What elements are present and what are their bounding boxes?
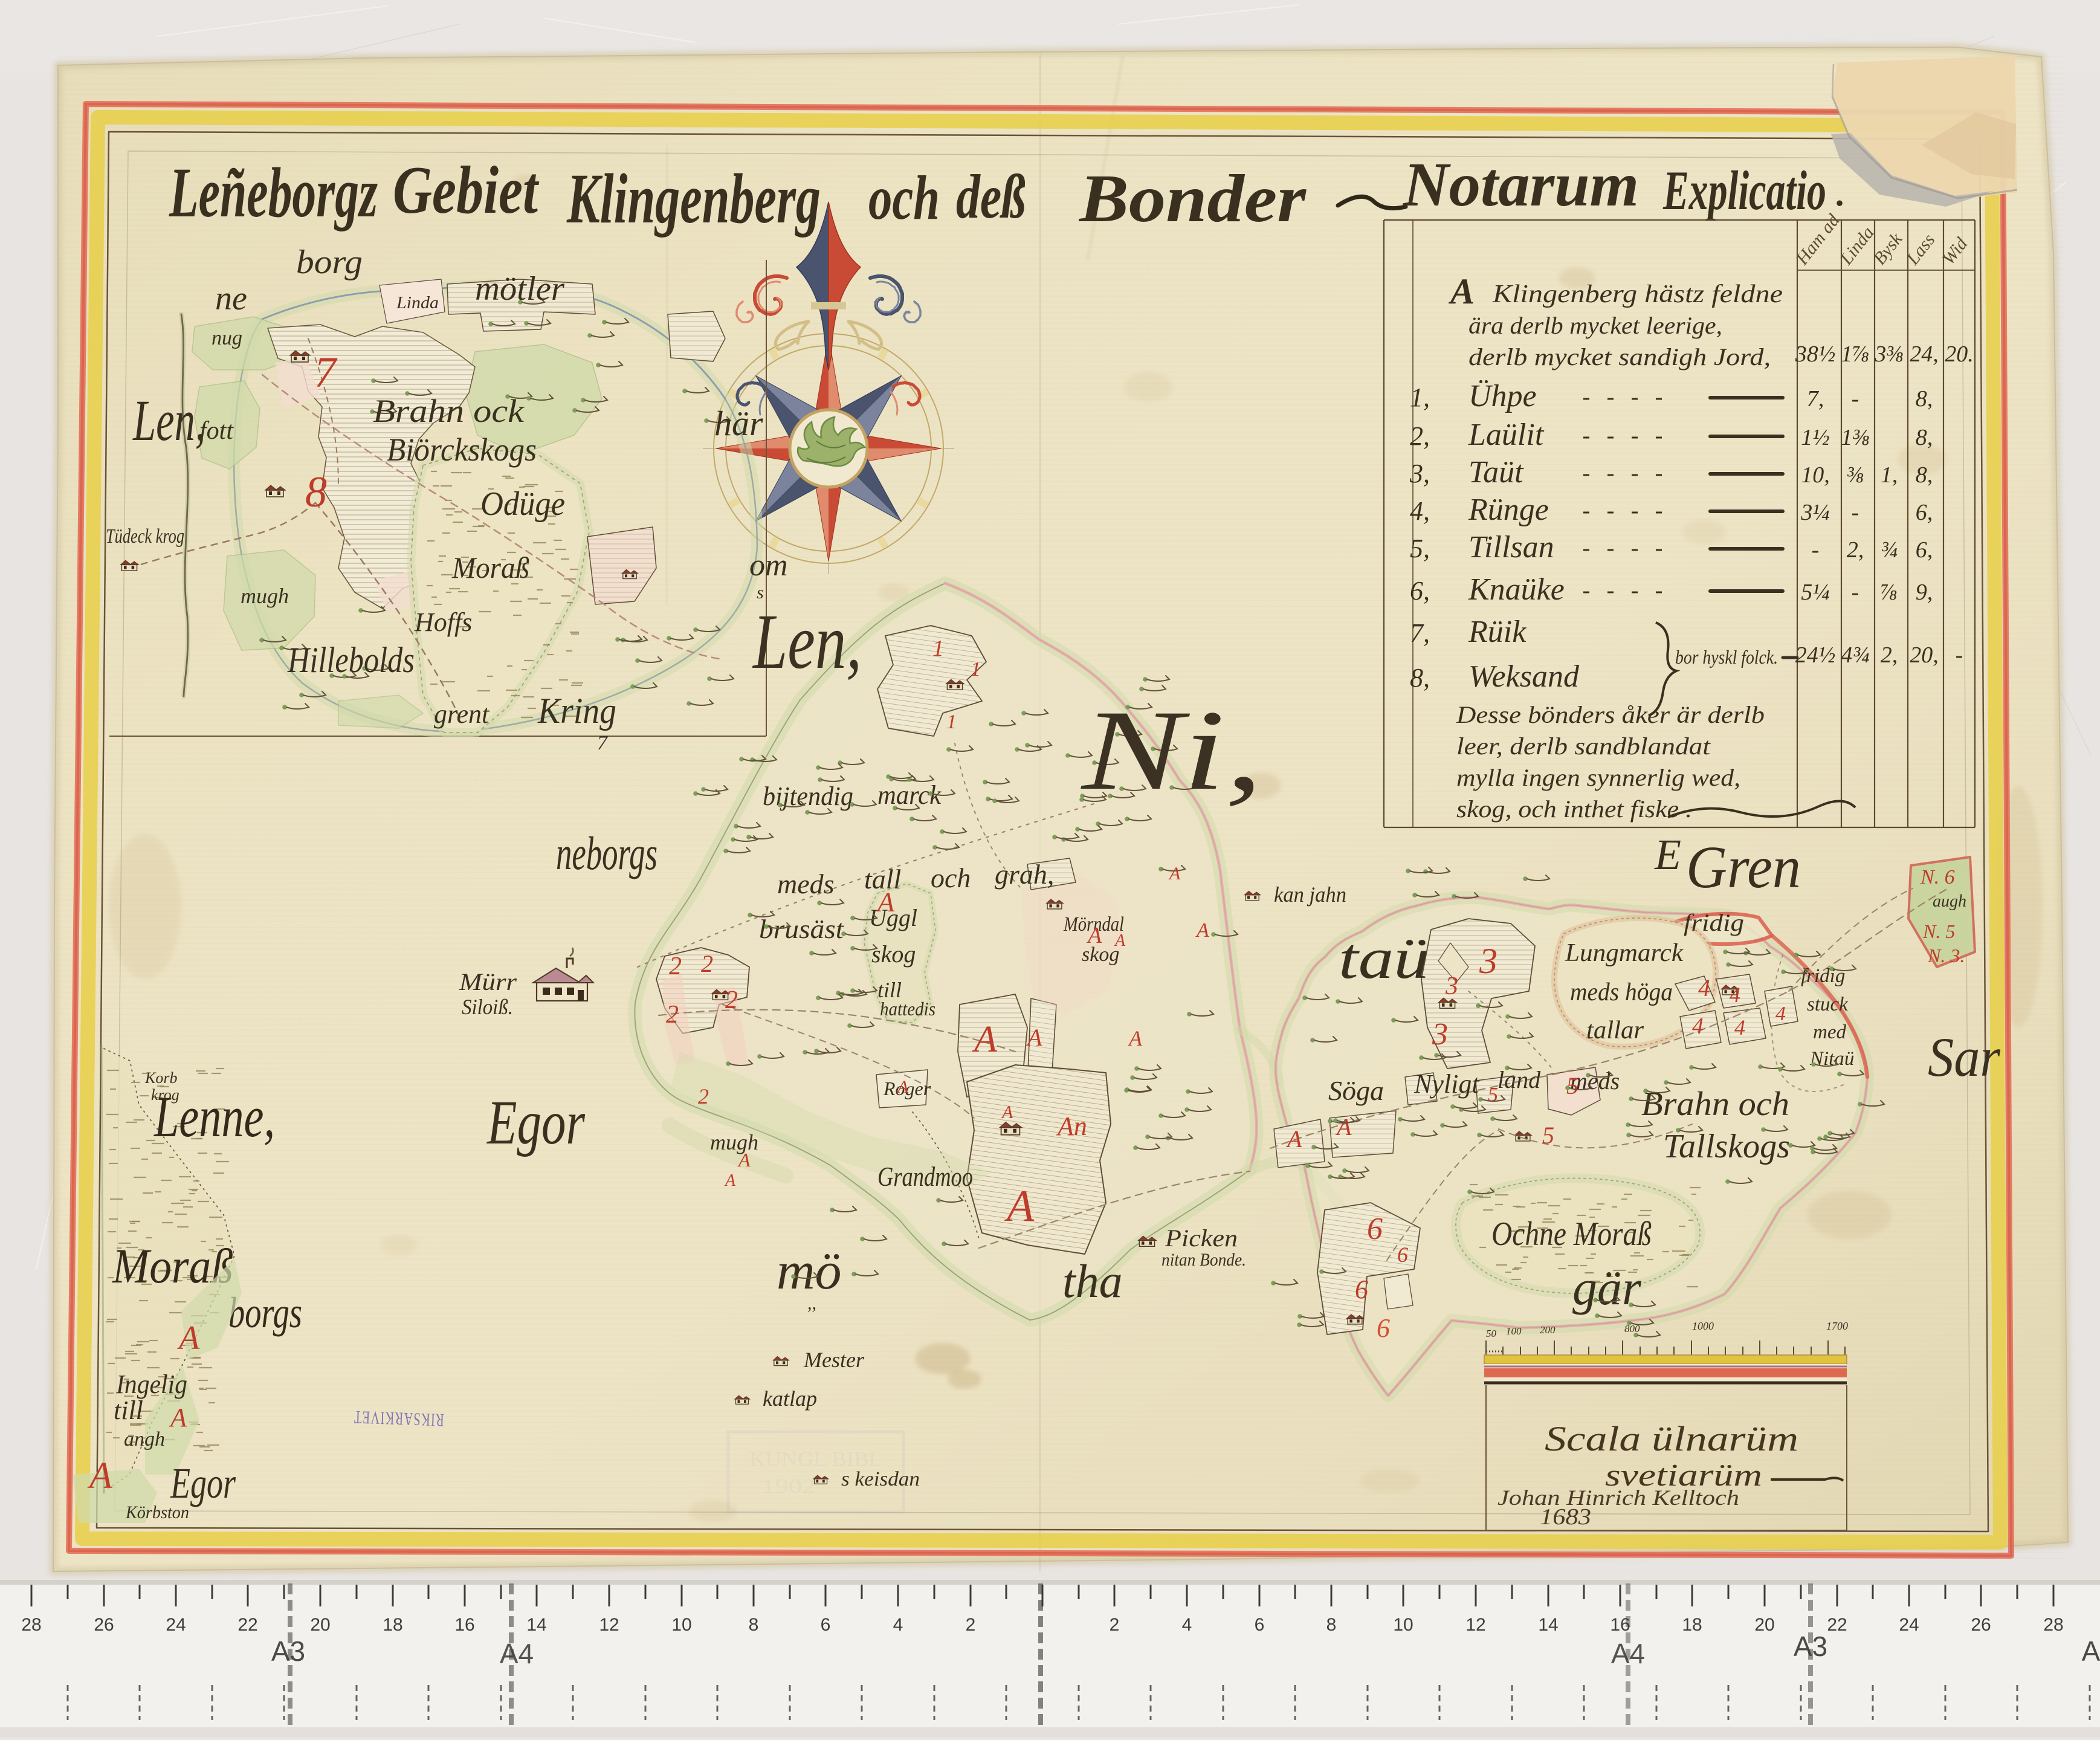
- svg-text:Biörckskogs: Biörckskogs: [387, 432, 537, 468]
- svg-text:RIKSARKIVET: RIKSARKIVET: [353, 1407, 444, 1430]
- svg-text:6,: 6,: [1410, 576, 1430, 606]
- svg-text:bor hyskl folck.: bor hyskl folck.: [1675, 646, 1778, 668]
- svg-text:A: A: [1026, 1024, 1042, 1051]
- svg-text:6: 6: [1367, 1212, 1383, 1246]
- svg-text:mugh: mugh: [241, 584, 289, 608]
- svg-text:7: 7: [314, 348, 338, 396]
- svg-text:Johan Hinrich Kelltoch: Johan Hinrich Kelltoch: [1497, 1486, 1739, 1510]
- svg-text:ne: ne: [215, 280, 247, 317]
- svg-text:Tallskogs: Tallskogs: [1663, 1128, 1790, 1165]
- svg-text:bijtendig: bijtendig: [763, 781, 853, 811]
- svg-text:katlap: katlap: [763, 1386, 817, 1411]
- svg-text:1½: 1½: [1801, 425, 1830, 450]
- svg-text:s keisdan: s keisdan: [841, 1468, 920, 1490]
- svg-text:A: A: [876, 887, 895, 917]
- svg-text:Taüt: Taüt: [1468, 455, 1524, 490]
- svg-text:A: A: [1114, 931, 1126, 950]
- svg-text:8: 8: [305, 468, 327, 516]
- svg-text:2,: 2,: [1847, 537, 1864, 563]
- svg-text:ära derlb mycket leerige,: ära derlb mycket leerige,: [1468, 312, 1722, 339]
- svg-text:4: 4: [1182, 1615, 1192, 1635]
- svg-text:A: A: [1335, 1113, 1352, 1140]
- svg-text:skog: skog: [871, 940, 916, 968]
- svg-text:borg: borg: [296, 244, 363, 281]
- svg-text:grent: grent: [434, 699, 490, 729]
- svg-text:Nitaü: Nitaü: [1809, 1048, 1854, 1070]
- svg-text:brusäst: brusäst: [759, 914, 845, 944]
- svg-text:1,: 1,: [1881, 462, 1898, 488]
- svg-text:Mürr: Mürr: [459, 968, 517, 995]
- svg-text:deß: deß: [956, 162, 1026, 231]
- svg-text:A: A: [1128, 1026, 1143, 1050]
- svg-text:38½: 38½: [1795, 341, 1836, 367]
- svg-text:angh: angh: [124, 1428, 165, 1451]
- svg-text:24½: 24½: [1795, 642, 1836, 668]
- svg-text:Laülit: Laülit: [1468, 418, 1545, 452]
- svg-text:A: A: [1448, 271, 1475, 311]
- svg-text:Lungmarck: Lungmarck: [1565, 939, 1684, 967]
- svg-text:Notarum: Notarum: [1403, 150, 1639, 219]
- svg-text:8,: 8,: [1410, 663, 1430, 693]
- svg-text:A4: A4: [500, 1638, 534, 1669]
- svg-text:10: 10: [671, 1615, 691, 1635]
- svg-text:5: 5: [1542, 1122, 1554, 1149]
- svg-text:kan jahn: kan jahn: [1274, 882, 1346, 907]
- svg-text:Bonder: Bonder: [1078, 161, 1307, 236]
- svg-text:stuck: stuck: [1807, 994, 1849, 1015]
- svg-text:Ochne Moraß: Ochne Moraß: [1491, 1215, 1652, 1253]
- svg-text:-: -: [1852, 386, 1859, 412]
- svg-text:12: 12: [1465, 1615, 1485, 1635]
- svg-text:Ni,: Ni,: [1080, 687, 1263, 814]
- svg-text:14: 14: [1538, 1615, 1558, 1635]
- svg-text:2: 2: [669, 952, 682, 980]
- svg-text:18: 18: [383, 1615, 402, 1635]
- svg-text:Linda: Linda: [396, 294, 439, 312]
- svg-text:fridig: fridig: [1684, 909, 1744, 936]
- svg-text:Tüdeck krog: Tüdeck krog: [106, 525, 184, 548]
- svg-text:4,: 4,: [1410, 496, 1430, 526]
- svg-text:-: -: [1852, 500, 1859, 525]
- svg-text:,,: ,,: [807, 1293, 816, 1313]
- svg-text:N. 5: N. 5: [1922, 920, 1955, 942]
- svg-text:1: 1: [932, 636, 944, 661]
- svg-text:4: 4: [1692, 1014, 1704, 1039]
- svg-text:Ühpe: Ühpe: [1468, 379, 1537, 413]
- svg-text:Explicatio: Explicatio: [1662, 160, 1826, 221]
- svg-text:Söga: Söga: [1328, 1075, 1384, 1106]
- svg-text:taü: taü: [1339, 926, 1429, 991]
- svg-text:1683: 1683: [1540, 1504, 1591, 1530]
- svg-text:6: 6: [821, 1615, 831, 1635]
- svg-text:100: 100: [1506, 1325, 1522, 1337]
- svg-text:Moraß: Moraß: [451, 551, 529, 584]
- svg-text:2,: 2,: [1410, 421, 1430, 451]
- svg-text:till: till: [114, 1396, 143, 1425]
- svg-text:1000: 1000: [1692, 1320, 1714, 1332]
- svg-text:6: 6: [1355, 1275, 1368, 1304]
- svg-text:24: 24: [1899, 1615, 1919, 1635]
- svg-text:3: 3: [1479, 941, 1497, 981]
- svg-text:Egor: Egor: [486, 1088, 585, 1157]
- svg-text:augh: augh: [1933, 892, 1966, 911]
- svg-text:Siloiß.: Siloiß.: [462, 995, 513, 1019]
- svg-text:Egor: Egor: [170, 1459, 236, 1507]
- svg-text:om: om: [749, 548, 788, 583]
- svg-text:7,: 7,: [1807, 386, 1824, 412]
- svg-text:Brahn ock: Brahn ock: [373, 393, 525, 429]
- svg-text:meds: meds: [777, 868, 835, 899]
- svg-text:24: 24: [166, 1615, 186, 1635]
- svg-text:20: 20: [1754, 1615, 1774, 1635]
- svg-text:22: 22: [1827, 1615, 1847, 1635]
- svg-text:2: 2: [698, 1084, 709, 1108]
- svg-text:5¼: 5¼: [1801, 580, 1830, 605]
- svg-text:22: 22: [237, 1615, 257, 1635]
- svg-text:Leñeborgz: Leñeborgz: [169, 153, 378, 232]
- svg-text:skog, och inthet fiske .: skog, och inthet fiske .: [1456, 795, 1692, 823]
- svg-text:fott: fott: [199, 417, 234, 445]
- svg-text:A: A: [1168, 864, 1181, 884]
- svg-text:4¾: 4¾: [1841, 642, 1870, 668]
- svg-text:Klingenberg: Klingenberg: [566, 159, 821, 238]
- svg-text:derlb mycket sandigh Jord,: derlb mycket sandigh Jord,: [1468, 343, 1771, 370]
- svg-text:20.: 20.: [1945, 341, 1974, 367]
- svg-text:A: A: [1086, 923, 1102, 948]
- svg-text:och: och: [868, 163, 940, 233]
- svg-text:1⅜: 1⅜: [1841, 425, 1870, 450]
- svg-text:26: 26: [1971, 1615, 1991, 1635]
- svg-text:Brahn och: Brahn och: [1641, 1085, 1789, 1123]
- svg-text:3: 3: [1445, 972, 1458, 1000]
- svg-text:6: 6: [1377, 1313, 1390, 1343]
- svg-text:2: 2: [1110, 1615, 1120, 1635]
- svg-text:16: 16: [454, 1615, 474, 1635]
- svg-text:1: 1: [971, 658, 981, 681]
- svg-text:grah,: grah,: [995, 859, 1054, 890]
- svg-text:2,: 2,: [1881, 642, 1898, 668]
- svg-text:26: 26: [94, 1615, 114, 1635]
- svg-text:Körbston: Körbston: [125, 1502, 189, 1522]
- svg-text:tallar: tallar: [1586, 1017, 1644, 1044]
- svg-text:A: A: [87, 1455, 113, 1496]
- svg-text:Gren: Gren: [1686, 833, 1801, 901]
- svg-text:200: 200: [1540, 1324, 1556, 1336]
- svg-text:här: här: [714, 404, 763, 443]
- svg-text:Odüge: Odüge: [480, 485, 565, 523]
- svg-text:Scala ülnarüm: Scala ülnarüm: [1545, 1419, 1798, 1458]
- svg-text:A: A: [169, 1403, 187, 1432]
- svg-text:A: A: [737, 1149, 751, 1171]
- svg-text:Rünge: Rünge: [1468, 493, 1549, 527]
- svg-text:A: A: [972, 1019, 998, 1060]
- svg-text:Knaüke: Knaüke: [1468, 572, 1565, 607]
- svg-text:Picken: Picken: [1165, 1224, 1238, 1252]
- svg-text:20,: 20,: [1910, 642, 1939, 668]
- svg-text:2: 2: [725, 986, 738, 1014]
- svg-text:A: A: [724, 1171, 736, 1190]
- svg-text:Klingenberg hästz feldne: Klingenberg hästz feldne: [1492, 280, 1783, 308]
- svg-text:Sar: Sar: [1928, 1026, 2001, 1088]
- svg-text:Weksand: Weksand: [1468, 659, 1580, 694]
- svg-text:8,: 8,: [1916, 425, 1933, 450]
- svg-text:2: 2: [666, 1001, 679, 1029]
- svg-text:2: 2: [966, 1615, 976, 1635]
- svg-text:neborgs: neborgs: [556, 827, 657, 879]
- svg-text:A: A: [1285, 1125, 1302, 1153]
- svg-text:-: -: [1852, 580, 1859, 605]
- svg-text:6,: 6,: [1916, 537, 1933, 563]
- svg-text:9,: 9,: [1916, 580, 1933, 605]
- svg-text:KUNGL BIBL: KUNGL BIBL: [749, 1448, 882, 1470]
- svg-text:Rüik: Rüik: [1468, 615, 1527, 649]
- svg-text:12: 12: [599, 1615, 619, 1635]
- svg-text:4: 4: [1698, 974, 1710, 1001]
- svg-text:A: A: [2082, 1635, 2100, 1667]
- svg-text:800: 800: [1624, 1323, 1640, 1334]
- svg-text:N. 6: N. 6: [1920, 866, 1955, 888]
- svg-text:nitan Bonde.: nitan Bonde.: [1161, 1250, 1246, 1270]
- svg-text:mugh: mugh: [710, 1130, 758, 1154]
- svg-text:⅞: ⅞: [1881, 580, 1898, 605]
- svg-text:nug: nug: [212, 327, 242, 349]
- svg-text:10,: 10,: [1801, 462, 1830, 488]
- svg-text:Hoffs: Hoffs: [414, 607, 472, 637]
- svg-text:A: A: [176, 1319, 200, 1357]
- svg-text:3¼: 3¼: [1800, 500, 1830, 525]
- svg-text:50: 50: [1486, 1328, 1497, 1339]
- svg-text:1⅞: 1⅞: [1841, 341, 1870, 367]
- svg-text:1: 1: [946, 711, 957, 733]
- svg-text:8,: 8,: [1916, 462, 1933, 488]
- svg-text:och: och: [931, 862, 971, 893]
- svg-text:tha: tha: [1062, 1255, 1123, 1307]
- svg-text:¾: ¾: [1881, 537, 1898, 563]
- svg-text:14: 14: [526, 1615, 546, 1635]
- svg-text:⅜: ⅜: [1847, 462, 1864, 488]
- svg-text:mylla ingen synnerlig wed,: mylla ingen synnerlig wed,: [1456, 764, 1740, 791]
- svg-text:18: 18: [1682, 1615, 1702, 1635]
- svg-text:8: 8: [1326, 1615, 1337, 1635]
- svg-text:8,: 8,: [1916, 386, 1933, 412]
- svg-text:An: An: [1056, 1111, 1087, 1141]
- svg-text:Nyligt: Nyligt: [1413, 1069, 1480, 1099]
- svg-text:E: E: [1654, 830, 1681, 879]
- svg-text:3⅜: 3⅜: [1874, 341, 1904, 367]
- svg-text:mötler: mötler: [475, 270, 564, 308]
- svg-text:meds höga: meds höga: [1570, 978, 1673, 1006]
- svg-text:20: 20: [310, 1615, 330, 1635]
- svg-text:24,: 24,: [1910, 341, 1939, 367]
- svg-text:10: 10: [1393, 1615, 1413, 1635]
- svg-text:2: 2: [701, 950, 713, 977]
- svg-text:Desse bönders åker är derlb: Desse bönders åker är derlb: [1456, 701, 1765, 728]
- svg-text:4: 4: [1775, 1003, 1786, 1025]
- svg-text:N. 3.: N. 3.: [1927, 945, 1965, 966]
- svg-text:28: 28: [21, 1615, 41, 1635]
- svg-text:A: A: [896, 1077, 909, 1097]
- svg-text:mö: mö: [777, 1242, 842, 1301]
- svg-text:-: -: [1812, 537, 1820, 563]
- svg-text:Grandmoo: Grandmoo: [877, 1161, 973, 1192]
- svg-text:Len,: Len,: [752, 598, 862, 685]
- svg-text:1,: 1,: [1410, 383, 1430, 412]
- svg-text:3,: 3,: [1409, 459, 1430, 488]
- svg-text:1902: 1902: [761, 1475, 816, 1498]
- svg-text:4: 4: [893, 1615, 903, 1635]
- svg-text:6,: 6,: [1916, 500, 1933, 525]
- svg-text:Hillebolds: Hillebolds: [287, 640, 415, 680]
- svg-text:Tillsan: Tillsan: [1468, 530, 1554, 564]
- svg-text:Korb: Korb: [144, 1069, 177, 1087]
- svg-text:6: 6: [1255, 1615, 1265, 1635]
- svg-text:4: 4: [1730, 983, 1740, 1007]
- svg-text:1700: 1700: [1826, 1320, 1848, 1332]
- svg-text:A: A: [1195, 919, 1209, 942]
- svg-text:.: .: [1835, 163, 1847, 216]
- svg-text:A: A: [1004, 1182, 1035, 1231]
- svg-text:6: 6: [1397, 1243, 1408, 1267]
- svg-text:krog: krog: [151, 1086, 179, 1104]
- svg-text:Kring: Kring: [537, 691, 616, 731]
- svg-text:3: 3: [1432, 1017, 1448, 1052]
- svg-text:5,: 5,: [1410, 534, 1430, 563]
- svg-text:Gebiet: Gebiet: [393, 153, 539, 228]
- svg-text:leer, derlb sandblandat: leer, derlb sandblandat: [1456, 733, 1711, 760]
- svg-text:hattedis: hattedis: [880, 998, 935, 1020]
- svg-text:Ingelig: Ingelig: [115, 1370, 187, 1399]
- svg-text:5: 5: [1488, 1084, 1498, 1106]
- svg-text:Len,: Len,: [132, 388, 205, 453]
- svg-text:-: -: [1956, 642, 1963, 668]
- svg-text:28: 28: [2043, 1615, 2063, 1635]
- svg-text:4: 4: [1734, 1015, 1745, 1040]
- svg-text:8: 8: [749, 1615, 759, 1635]
- svg-text:7,: 7,: [1410, 618, 1430, 648]
- svg-text:fridig: fridig: [1801, 965, 1845, 987]
- svg-text:A: A: [1001, 1102, 1013, 1122]
- svg-text:Mester: Mester: [803, 1348, 865, 1372]
- svg-text:med: med: [1813, 1021, 1846, 1043]
- svg-text:7: 7: [597, 732, 609, 754]
